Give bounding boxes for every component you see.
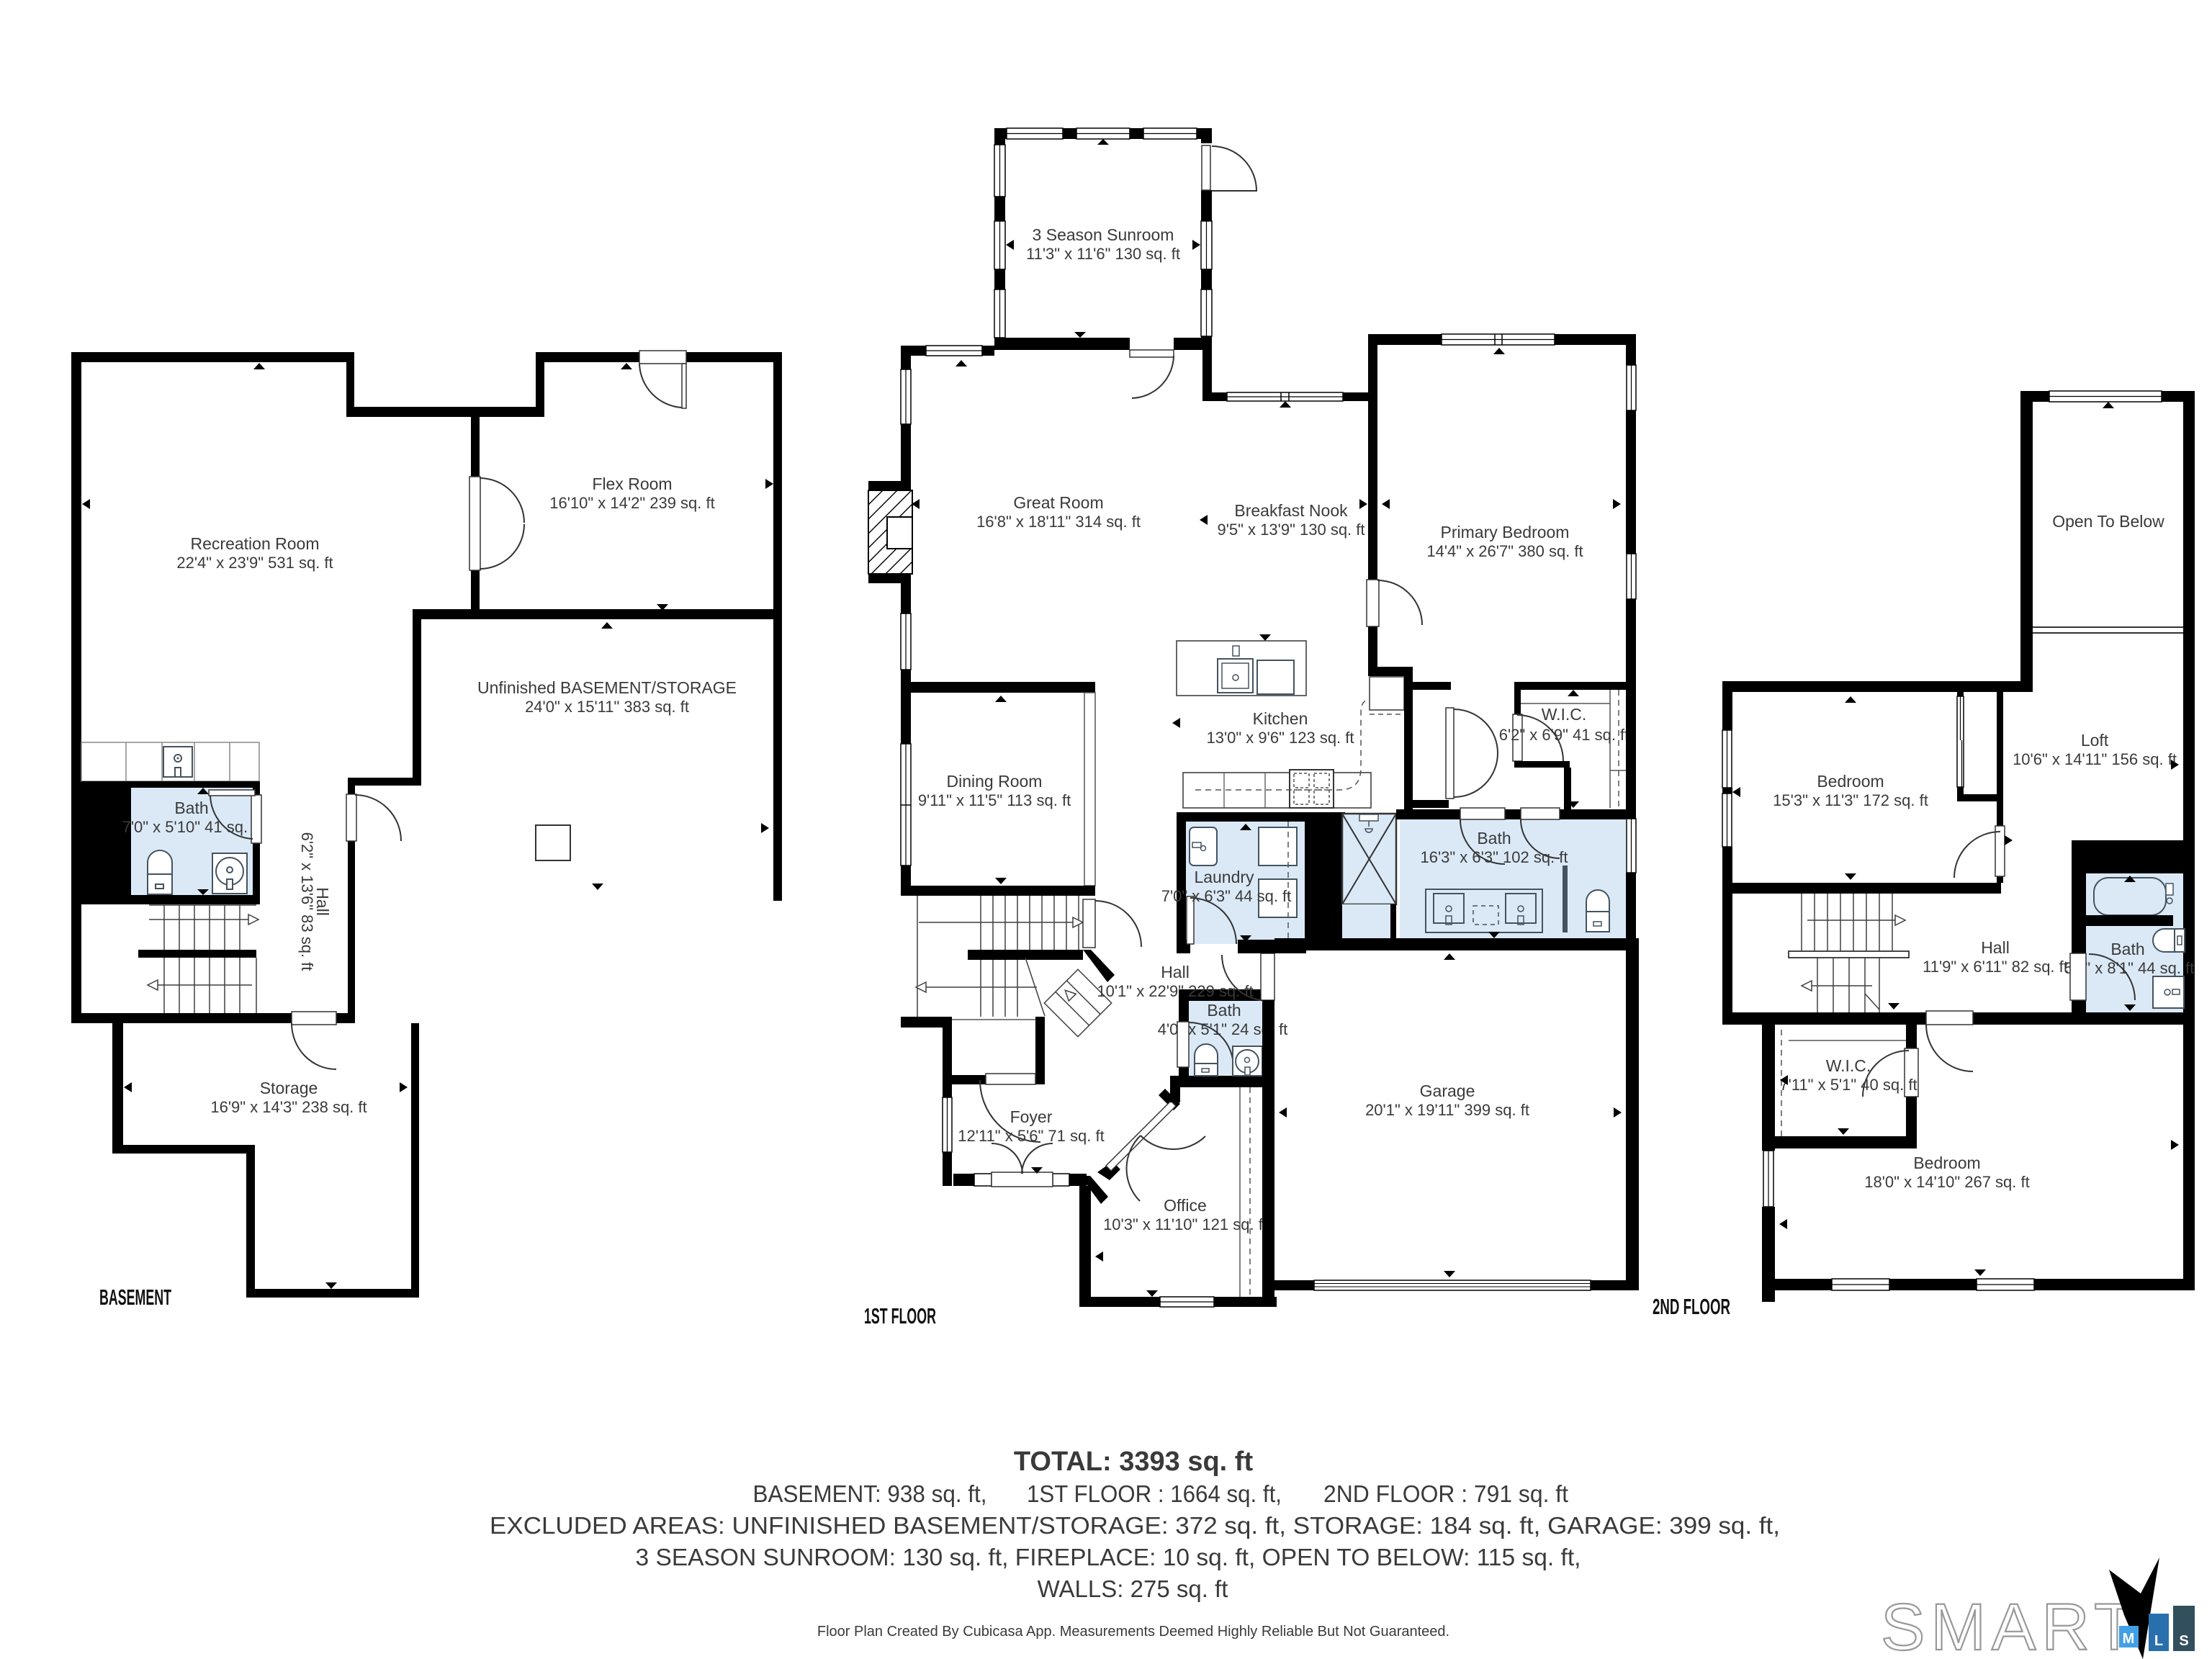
- svg-text:3 SEASON SUNROOM: 130 sq. ft,: 3 SEASON SUNROOM: 130 sq. ft, FIREPLACE:…: [636, 1544, 1581, 1570]
- svg-text:Bath: Bath: [2110, 940, 2144, 958]
- svg-text:WALLS: 275 sq. ft: WALLS: 275 sq. ft: [1038, 1575, 1228, 1602]
- svg-text:Loft: Loft: [2081, 731, 2109, 750]
- svg-text:2ND FLOOR : 791 sq. ft: 2ND FLOOR : 791 sq. ft: [1323, 1480, 1568, 1507]
- svg-text:10'3" x 11'10" 121 sq. ft: 10'3" x 11'10" 121 sq. ft: [1103, 1215, 1267, 1233]
- svg-text:Recreation Room: Recreation Room: [191, 534, 320, 553]
- svg-text:10'1" x 22'9" 229 sq. ft: 10'1" x 22'9" 229 sq. ft: [1097, 982, 1253, 1000]
- svg-text:22'4" x 23'9" 531 sq. ft: 22'4" x 23'9" 531 sq. ft: [176, 554, 333, 572]
- svg-text:Foyer: Foyer: [1010, 1107, 1053, 1126]
- svg-text:9'11" x 11'5" 113 sq. ft: 9'11" x 11'5" 113 sq. ft: [918, 791, 1071, 809]
- svg-text:Primary Bedroom: Primary Bedroom: [1441, 523, 1570, 541]
- svg-text:Bath: Bath: [1477, 829, 1511, 848]
- svg-text:Bath: Bath: [1207, 1001, 1241, 1020]
- svg-text:16'9" x 14'3" 238 sq. ft: 16'9" x 14'3" 238 sq. ft: [210, 1098, 367, 1116]
- svg-text:Hall: Hall: [1981, 938, 2010, 957]
- svg-text:1ST FLOOR: 1ST FLOOR: [864, 1303, 936, 1328]
- svg-text:10'6" x 14'11" 156 sq. ft: 10'6" x 14'11" 156 sq. ft: [2013, 750, 2177, 768]
- svg-text:Floor Plan Created By Cubicasa: Floor Plan Created By Cubicasa App. Meas…: [817, 1624, 1449, 1640]
- svg-text:Breakfast Nook: Breakfast Nook: [1234, 501, 1348, 520]
- svg-text:W.I.C.: W.I.C.: [1826, 1056, 1871, 1075]
- svg-text:Office: Office: [1164, 1196, 1207, 1215]
- svg-text:15'3" x 11'3" 172 sq. ft: 15'3" x 11'3" 172 sq. ft: [1773, 791, 1928, 809]
- svg-text:14'4" x 26'7" 380 sq. ft: 14'4" x 26'7" 380 sq. ft: [1426, 542, 1583, 560]
- svg-text:Hall: Hall: [1161, 963, 1190, 981]
- svg-text:M: M: [2123, 1631, 2135, 1647]
- svg-text:24'0" x 15'11" 383 sq. ft: 24'0" x 15'11" 383 sq. ft: [525, 698, 689, 716]
- svg-text:W.I.C.: W.I.C.: [1542, 705, 1587, 724]
- svg-text:Bath: Bath: [174, 799, 208, 817]
- svg-text:Kitchen: Kitchen: [1253, 709, 1308, 728]
- svg-text:Garage: Garage: [1420, 1082, 1475, 1100]
- svg-text:Unfinished BASEMENT/STORAGE: Unfinished BASEMENT/STORAGE: [477, 678, 737, 697]
- svg-text:13'0" x 9'6" 123 sq. ft: 13'0" x 9'6" 123 sq. ft: [1206, 729, 1354, 747]
- svg-text:9'5" x 13'9" 130 sq. ft: 9'5" x 13'9" 130 sq. ft: [1217, 521, 1364, 539]
- svg-text:Great Room: Great Room: [1013, 493, 1103, 512]
- svg-text:18'0" x 14'10" 267 sq. ft: 18'0" x 14'10" 267 sq. ft: [1864, 1173, 2030, 1191]
- svg-text:SMART: SMART: [1881, 1591, 2140, 1659]
- svg-text:16'10" x 14'2" 239 sq. ft: 16'10" x 14'2" 239 sq. ft: [549, 494, 715, 512]
- svg-text:Open To Below: Open To Below: [2052, 512, 2164, 531]
- svg-text:Bedroom: Bedroom: [1817, 772, 1884, 791]
- svg-text:Bedroom: Bedroom: [1913, 1154, 1980, 1172]
- svg-text:Laundry: Laundry: [1194, 868, 1254, 886]
- svg-text:2ND FLOOR: 2ND FLOOR: [1653, 1294, 1730, 1319]
- svg-text:BASEMENT: 938 sq. ft,: BASEMENT: 938 sq. ft,: [753, 1480, 987, 1507]
- svg-text:6'2" x 13'6" 83 sq. ft: 6'2" x 13'6" 83 sq. ft: [298, 832, 316, 971]
- svg-text:7'11" x 5'1" 40 sq. ft: 7'11" x 5'1" 40 sq. ft: [1779, 1076, 1917, 1094]
- svg-text:S: S: [2179, 1633, 2188, 1649]
- svg-text:Flex Room: Flex Room: [592, 475, 672, 493]
- svg-text:6'2" x 6'9" 41 sq. ft: 6'2" x 6'9" 41 sq. ft: [1499, 726, 1629, 744]
- svg-text:EXCLUDED AREAS: UNFINISHED BAS: EXCLUDED AREAS: UNFINISHED BASEMENT/STOR…: [490, 1512, 1780, 1539]
- svg-text:BASEMENT: BASEMENT: [99, 1285, 171, 1310]
- svg-text:TOTAL: 3393 sq. ft: TOTAL: 3393 sq. ft: [1014, 1447, 1254, 1477]
- svg-text:3 Season Sunroom: 3 Season Sunroom: [1033, 225, 1174, 244]
- svg-text:Storage: Storage: [260, 1079, 318, 1097]
- svg-text:16'8" x 18'11" 314 sq. ft: 16'8" x 18'11" 314 sq. ft: [976, 513, 1141, 531]
- svg-text:1ST FLOOR : 1664 sq. ft,: 1ST FLOOR : 1664 sq. ft,: [1027, 1480, 1282, 1507]
- svg-text:Dining Room: Dining Room: [947, 772, 1043, 791]
- svg-text:16'3" x 6'3" 102 sq. ft: 16'3" x 6'3" 102 sq. ft: [1420, 848, 1568, 866]
- svg-text:7'0" x 5'10" 41 sq. ft: 7'0" x 5'10" 41 sq. ft: [122, 818, 261, 836]
- svg-text:12'11" x 5'6" 71 sq. ft: 12'11" x 5'6" 71 sq. ft: [958, 1127, 1104, 1145]
- svg-text:L: L: [2154, 1633, 2163, 1649]
- svg-text:11'3" x 11'6" 130 sq. ft: 11'3" x 11'6" 130 sq. ft: [1026, 245, 1180, 263]
- svg-text:11'9" x 6'11" 82 sq. ft: 11'9" x 6'11" 82 sq. ft: [1923, 958, 2068, 976]
- svg-text:7'0" x 6'3" 44 sq. ft: 7'0" x 6'3" 44 sq. ft: [1161, 887, 1292, 905]
- svg-text:20'1" x 19'11" 399 sq. ft: 20'1" x 19'11" 399 sq. ft: [1365, 1101, 1529, 1119]
